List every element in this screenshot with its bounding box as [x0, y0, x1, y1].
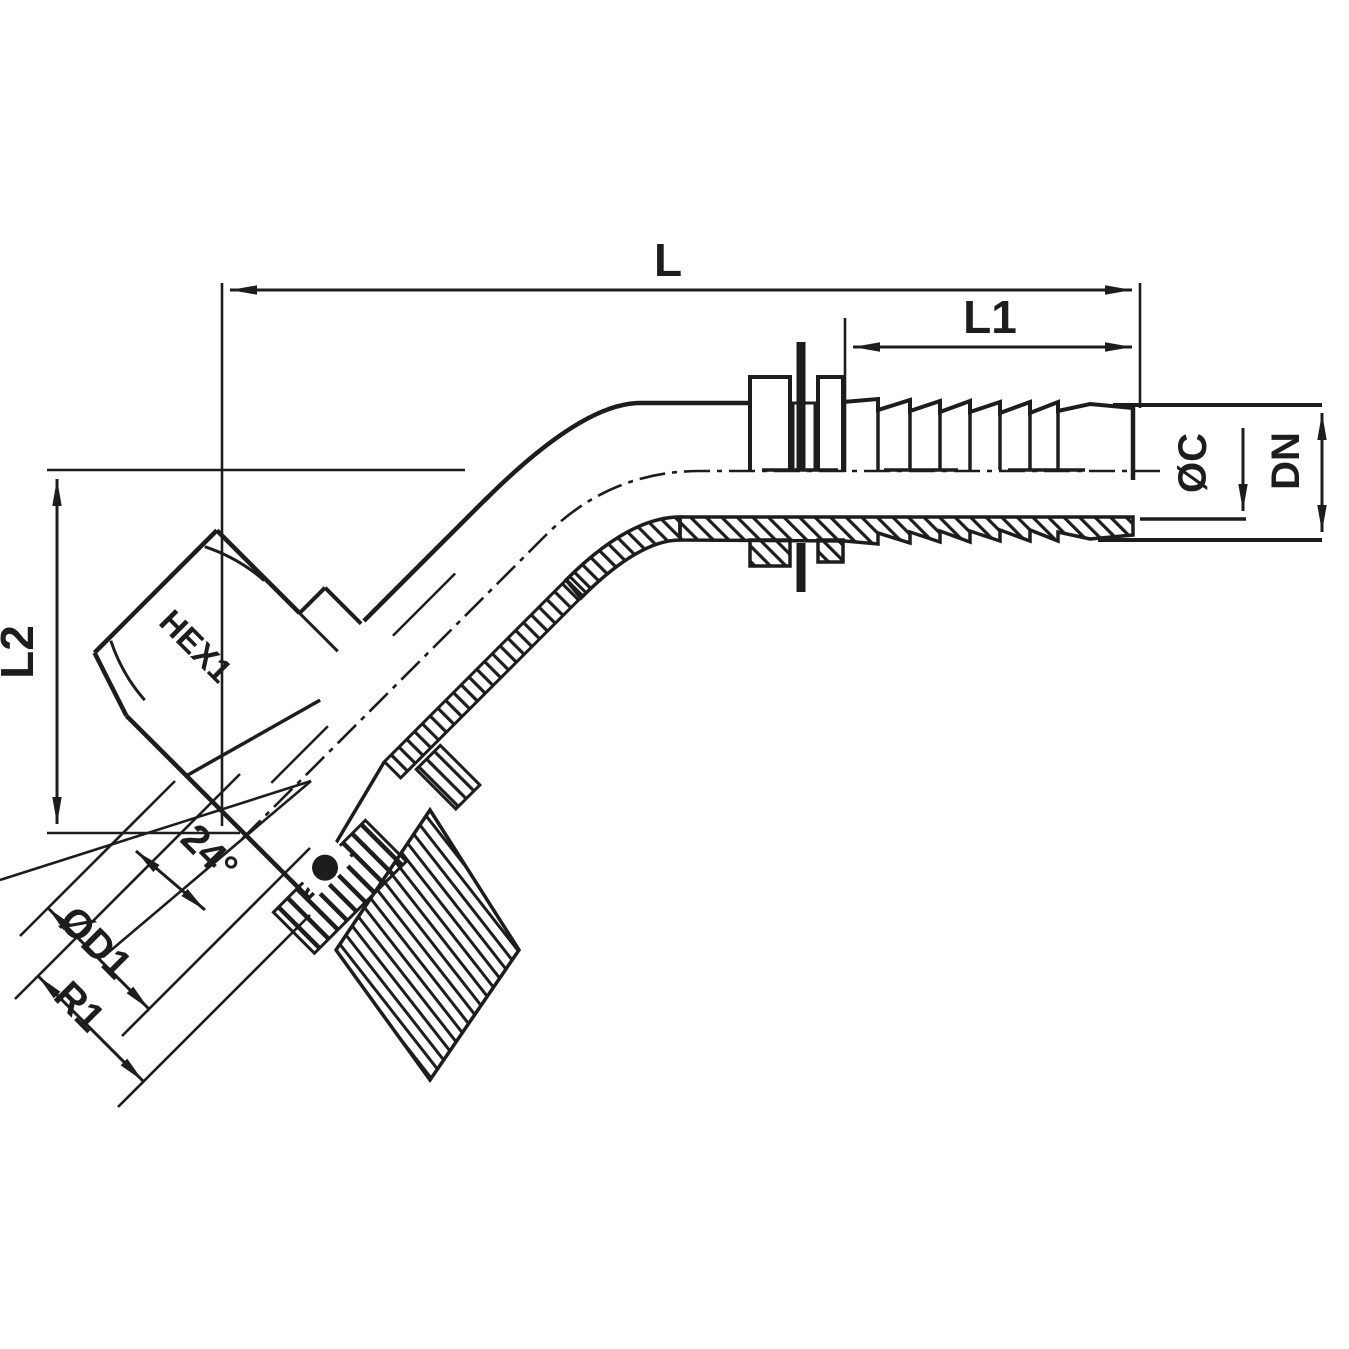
washer-ring [300, 588, 364, 652]
nut-chamfer-arc [98, 641, 157, 700]
tail-length-label: L1 [963, 291, 1017, 343]
fitting-body [242, 342, 1322, 1080]
dimension-cone-angle: 24° [0, 781, 311, 957]
fitting-diagram: HEX1 L L1 L2 ØC [0, 0, 1349, 1349]
drop-height-label: L2 [0, 625, 43, 679]
leg-wall-section [384, 576, 586, 778]
dimension-OC: ØC [1171, 428, 1243, 511]
tail-wall-section [680, 517, 1133, 544]
dimension-L2: L2 [0, 470, 465, 833]
angle-ray [0, 781, 311, 880]
hose-barbs [843, 399, 1133, 413]
bend-wall-section [566, 517, 680, 598]
technical-drawing-page: HEX1 L L1 L2 ØC [0, 0, 1349, 1349]
thread-size-label: R1 [46, 973, 113, 1040]
dimension-L1: L1 [845, 291, 1132, 472]
dimension-DN: DN [1264, 413, 1322, 532]
hex-nut [79, 530, 447, 898]
nut-chamfer-arc [205, 534, 264, 593]
angled-leg: HEX1 [54, 377, 630, 953]
crimp-collar-lower [750, 540, 843, 592]
dimension-R1: R1 [15, 774, 310, 1107]
cone-diameter-label: ØD1 [51, 898, 140, 987]
overall-length-label: L [654, 234, 682, 286]
crimp-collar-upper [750, 342, 843, 470]
nominal-bore-label: DN [1264, 432, 1308, 490]
surface-line [271, 726, 328, 783]
barb-tooth-lines [878, 408, 1085, 470]
hex-size-label: HEX1 [152, 602, 239, 689]
tail-diameter-label: ØC [1171, 433, 1215, 493]
